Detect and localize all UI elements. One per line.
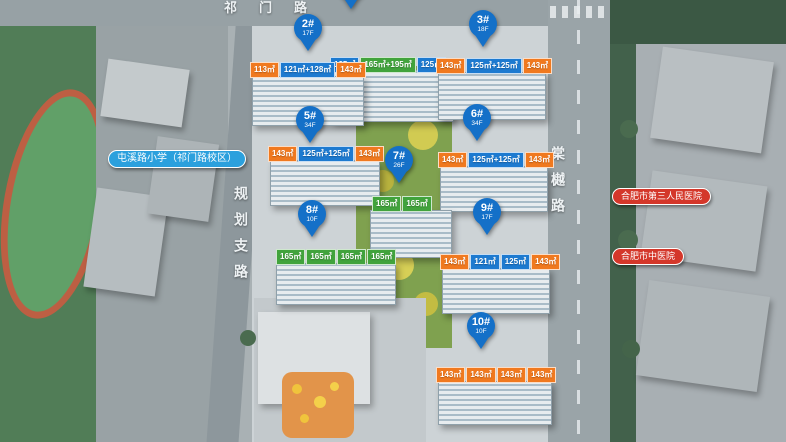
pin-bubble: 2# 17F bbox=[294, 14, 322, 42]
pin-bubble: 5# 34F bbox=[296, 106, 324, 134]
pin-tip bbox=[479, 223, 495, 235]
pin-floor-count: 34F bbox=[471, 121, 482, 128]
building-pin-1[interactable]: 1# bbox=[336, 0, 366, 9]
road-center-line bbox=[577, 0, 580, 442]
pin-tip bbox=[302, 131, 318, 143]
building-pin-2[interactable]: 2# 17F bbox=[293, 14, 323, 51]
road-name-left: 规划支路 bbox=[231, 186, 251, 290]
tree bbox=[240, 330, 256, 346]
building-pin-7[interactable]: 7# 26F bbox=[384, 146, 414, 183]
roadside-trees bbox=[610, 0, 636, 442]
building-pin-8[interactable]: 8# 10F bbox=[297, 200, 327, 237]
pin-bubble: 9# 17F bbox=[473, 198, 501, 226]
unit-area-label: 165㎡+195㎡ bbox=[360, 57, 415, 73]
playground-dot bbox=[330, 382, 339, 391]
playground-dot bbox=[300, 414, 309, 423]
tree bbox=[622, 340, 640, 358]
unit-area-label: 165㎡ bbox=[402, 196, 431, 212]
unit-area-label: 165㎡ bbox=[337, 249, 366, 265]
playground-dot bbox=[292, 384, 302, 394]
pin-tip bbox=[391, 171, 407, 183]
unit-strip-5: 143㎡ 125㎡+125㎡ 143㎡ bbox=[268, 146, 384, 162]
poi-school-label[interactable]: 屯溪路小学（祁门路校区） bbox=[108, 150, 246, 168]
unit-area-label: 143㎡ bbox=[436, 367, 465, 383]
school-building bbox=[100, 59, 189, 128]
unit-area-label: 125㎡+125㎡ bbox=[298, 146, 353, 162]
unit-area-label: 165㎡ bbox=[306, 249, 335, 265]
pin-tip bbox=[343, 0, 359, 9]
pin-building-number: 9# bbox=[481, 203, 493, 214]
tower-9 bbox=[442, 268, 550, 314]
unit-area-label: 165㎡ bbox=[276, 249, 305, 265]
pin-tip bbox=[304, 225, 320, 237]
building-pin-3[interactable]: 3# 18F bbox=[468, 10, 498, 47]
pin-floor-count: 17F bbox=[302, 31, 313, 38]
unit-area-label: 143㎡ bbox=[523, 58, 552, 74]
tower-8 bbox=[276, 263, 396, 305]
tower-3 bbox=[438, 72, 546, 120]
pin-bubble: 7# 26F bbox=[385, 146, 413, 174]
unit-strip-10: 143㎡ 143㎡ 143㎡ 143㎡ bbox=[436, 367, 556, 383]
unit-area-label: 121㎡+128㎡ bbox=[280, 62, 335, 78]
pin-bubble: 8# 10F bbox=[298, 200, 326, 228]
unit-area-label: 143㎡ bbox=[466, 367, 495, 383]
pin-floor-count: 34F bbox=[304, 123, 315, 130]
unit-area-label: 143㎡ bbox=[336, 62, 365, 78]
poi-hospital-1-label[interactable]: 合肥市第三人民医院 bbox=[612, 188, 711, 205]
pin-building-number: 7# bbox=[393, 151, 405, 162]
pin-building-number: 5# bbox=[304, 111, 316, 122]
school-building bbox=[147, 136, 219, 222]
building-pin-9[interactable]: 9# 17F bbox=[472, 198, 502, 235]
pin-floor-count: 18F bbox=[477, 27, 488, 34]
pin-floor-count: 17F bbox=[481, 215, 492, 222]
unit-strip-7: 165㎡ 165㎡ bbox=[372, 196, 432, 212]
tree bbox=[620, 120, 638, 138]
poi-hospital-2-label[interactable]: 合肥市中医院 bbox=[612, 248, 684, 265]
building-pin-5[interactable]: 5# 34F bbox=[295, 106, 325, 143]
unit-area-label: 125㎡ bbox=[501, 254, 530, 270]
pin-floor-count: 26F bbox=[393, 163, 404, 170]
pin-floor-count: 10F bbox=[475, 329, 486, 336]
building-pin-10[interactable]: 10# 10F bbox=[466, 312, 496, 349]
pin-bubble: 6# 34F bbox=[463, 104, 491, 132]
unit-area-label: 143㎡ bbox=[525, 152, 554, 168]
city-building bbox=[636, 280, 770, 392]
pin-building-number: 2# bbox=[302, 19, 314, 30]
unit-area-label: 143㎡ bbox=[527, 367, 556, 383]
pin-bubble: 10# 10F bbox=[467, 312, 495, 340]
unit-strip-2: 113㎡ 121㎡+128㎡ 143㎡ bbox=[250, 62, 366, 78]
city-building bbox=[650, 47, 774, 154]
unit-strip-9: 143㎡ 121㎡ 125㎡ 143㎡ bbox=[440, 254, 560, 270]
unit-area-label: 143㎡ bbox=[497, 367, 526, 383]
building-pin-6[interactable]: 6# 34F bbox=[462, 104, 492, 141]
pin-tip bbox=[475, 35, 491, 47]
pin-building-number: 6# bbox=[471, 109, 483, 120]
pin-tip bbox=[300, 39, 316, 51]
crosswalk bbox=[550, 6, 608, 18]
pin-building-number: 8# bbox=[306, 205, 318, 216]
unit-area-label: 125㎡+125㎡ bbox=[466, 58, 521, 74]
pin-bubble: 3# 18F bbox=[469, 10, 497, 38]
pin-tip bbox=[469, 129, 485, 141]
pin-building-number: 3# bbox=[477, 15, 489, 26]
unit-strip-3: 143㎡ 125㎡+125㎡ 143㎡ bbox=[436, 58, 552, 74]
unit-strip-8: 165㎡ 165㎡ 165㎡ 165㎡ bbox=[276, 249, 396, 265]
unit-area-label: 143㎡ bbox=[531, 254, 560, 270]
unit-area-label: 143㎡ bbox=[440, 254, 469, 270]
tree bbox=[618, 230, 638, 250]
unit-area-label: 143㎡ bbox=[355, 146, 384, 162]
unit-area-label: 113㎡ bbox=[250, 62, 279, 78]
unit-area-label: 165㎡ bbox=[372, 196, 401, 212]
unit-area-label: 125㎡+125㎡ bbox=[468, 152, 523, 168]
pin-tip bbox=[473, 337, 489, 349]
roadside-trees bbox=[610, 0, 786, 44]
unit-area-label: 143㎡ bbox=[268, 146, 297, 162]
pin-floor-count: 10F bbox=[306, 217, 317, 224]
unit-area-label: 121㎡ bbox=[470, 254, 499, 270]
unit-area-label: 143㎡ bbox=[436, 58, 465, 74]
playground-dot bbox=[314, 396, 326, 408]
tower-10 bbox=[438, 381, 552, 425]
unit-area-label: 165㎡ bbox=[367, 249, 396, 265]
site-aerial-map: 125㎡ 165㎡+195㎡ 125㎡ 113㎡ 121㎡+128㎡ 143㎡ … bbox=[0, 0, 786, 442]
unit-area-label: 143㎡ bbox=[438, 152, 467, 168]
pin-building-number: 10# bbox=[472, 317, 490, 328]
unit-strip-6: 143㎡ 125㎡+125㎡ 143㎡ bbox=[438, 152, 554, 168]
